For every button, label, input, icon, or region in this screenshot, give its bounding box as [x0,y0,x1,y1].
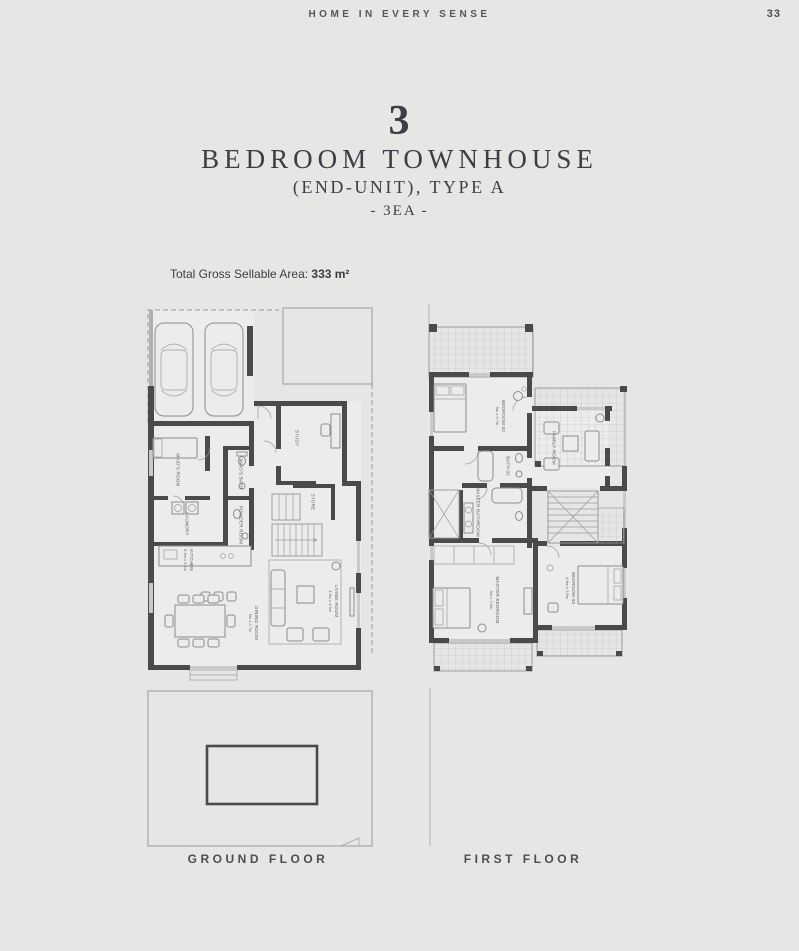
dim-bedroom03: 4.8m x 3.5m [565,577,570,600]
dim-dining: 5m x 3.7m [248,614,253,633]
label-laundry: LAUNDRY [185,512,190,535]
label-study: STUDY [295,430,300,447]
garden [148,670,372,846]
sellable-area-value: 333 m² [311,267,349,281]
label-maids-bath: MAID'S BATH [239,459,244,490]
bedroom03-balcony [537,630,622,656]
caption-first-floor: FIRST FLOOR [464,852,583,866]
label-bedroom02: BEDROOM 02 [501,400,506,432]
dim-master-bedroom: 5m x 3.9m [489,591,494,610]
car-1 [155,323,193,416]
label-bath02: BATH 02 [506,456,511,476]
label-dining: DINING ROOM [254,606,259,640]
garden-gate [341,838,359,846]
title-main: BEDROOM TOWNHOUSE [0,144,799,174]
title-code: - 3EA - [0,202,799,220]
label-store: STORE [311,494,316,511]
sellable-area-label: Total Gross Sellable Area: [170,267,311,281]
entry-court [283,308,372,384]
title-sub: (END-UNIT), TYPE A [0,176,799,198]
master-balcony [434,643,532,671]
ground-floor-plan: STUDY MAID'S ROOM MAID'S BATH LAUNDRY PO… [145,298,377,850]
label-maids-room: MAID'S ROOM [176,453,181,486]
maid-bed [153,438,197,458]
label-family-room: FAMILY ROOM [552,431,557,465]
page-number: 33 [767,8,781,20]
dim-living: 4.9m x 4.9m [328,590,333,613]
first-floor-plan: BEDROOM 02 5m x 3.7m FAMILY ROOM BATH 02… [420,298,645,850]
page-header: HOME IN EVERY SENSE [0,9,799,20]
label-bedroom03: BEDROOM 03 [571,572,576,604]
label-master-bedroom: MASTER BEDROOM [495,577,500,624]
first-stairs [548,491,624,543]
dim-kitchen: 5.3m x 3.1m [183,549,188,572]
label-kitchen: KITCHEN [189,549,194,571]
label-living: LIVING ROOM [334,585,339,618]
title-number: 3 [0,100,799,142]
caption-ground-floor: GROUND FLOOR [188,852,329,866]
sellable-area: Total Gross Sellable Area: 333 m² [170,267,349,281]
label-master-bathroom: MASTER BATHROOM [476,487,481,537]
car-2 [205,323,243,416]
patio [207,746,317,804]
title-block: 3 BEDROOM TOWNHOUSE (END-UNIT), TYPE A -… [0,100,799,220]
dim-bedroom02: 5m x 3.7m [495,407,500,426]
top-terrace [429,324,533,377]
label-powder-room: POWDER ROOM [239,506,244,544]
